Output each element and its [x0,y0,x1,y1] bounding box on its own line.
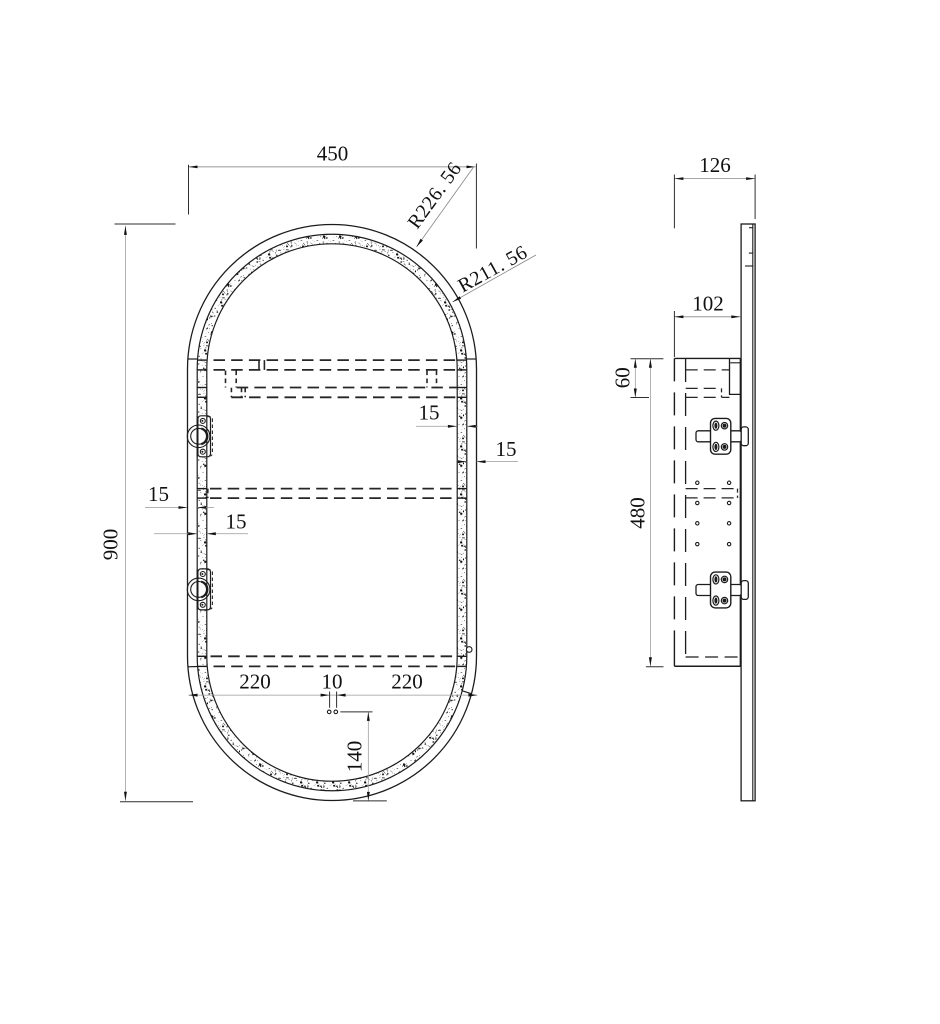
svg-text:15: 15 [226,509,247,533]
svg-text:10: 10 [322,669,343,693]
svg-text:480: 480 [625,497,649,529]
svg-text:140: 140 [342,741,366,773]
svg-text:126: 126 [699,153,731,177]
svg-text:15: 15 [419,400,440,424]
svg-text:220: 220 [391,669,423,693]
svg-text:220: 220 [239,669,271,693]
svg-text:60: 60 [610,367,634,388]
svg-text:102: 102 [692,291,724,315]
svg-text:450: 450 [317,141,349,165]
svg-text:900: 900 [98,529,122,561]
svg-text:15: 15 [148,482,169,506]
svg-text:15: 15 [496,437,517,461]
